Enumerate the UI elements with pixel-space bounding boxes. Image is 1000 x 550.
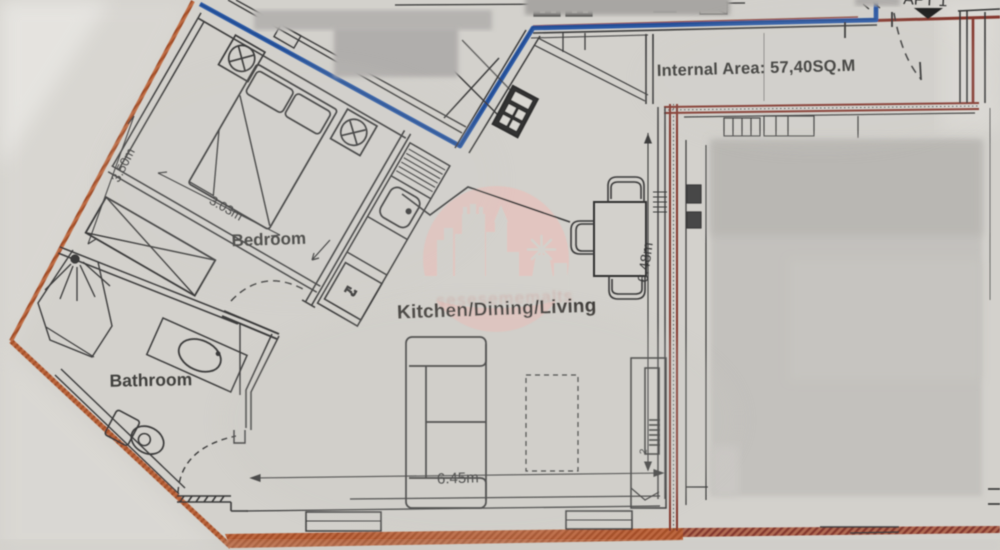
svg-text:Bathroom: Bathroom — [109, 369, 192, 390]
